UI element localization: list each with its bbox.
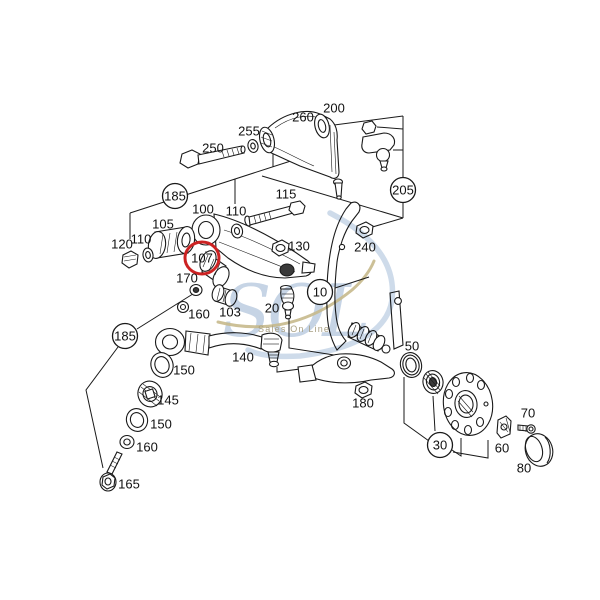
washer-160l-drawing [120,436,134,449]
part-number-text: 170 [176,271,198,286]
part-number-text: 107 [191,251,213,266]
washer-255-drawing [247,139,259,154]
part-number-text: 80 [517,461,531,476]
part-label-180: 180 [352,396,374,411]
part-label-120: 120 [111,237,133,252]
clip-60-drawing [497,416,511,438]
part-label-160: 160 [188,307,210,322]
part-number-text: 180 [352,396,374,411]
part-number-text: 60 [495,441,509,456]
part-number-text: 130 [288,239,310,254]
wheel-hub-30-drawing [439,369,496,438]
bearing-drawing [421,369,445,396]
watermark-logo: SOL [222,269,366,353]
part-label-30: 30 [428,433,453,458]
part-number-text: 200 [323,101,345,116]
part-label-205: 205 [391,178,416,203]
part-label-70: 70 [521,406,535,421]
part-number-text: 160 [188,307,210,322]
part-label-240: 240 [354,240,376,255]
part-number-text: 185 [164,189,186,204]
part-label-50: 50 [405,339,419,354]
part-label-110: 110 [131,232,152,247]
part-label-103: 103 [219,305,241,320]
nut-120-drawing [122,251,138,268]
watermark-tagline: Sales On Line [258,324,330,334]
part-number-text: 150 [173,363,195,378]
part-label-105: 105 [152,217,174,232]
seal-50-drawing [398,350,424,379]
part-label-250: 250 [202,141,224,156]
parts-diagram: SOL Sales On Line 2502552602002051851001… [0,0,600,600]
part-number-text: 255 [238,124,260,139]
part-number-text: 105 [152,217,174,232]
part-number-text: 160 [136,440,158,455]
part-label-165: 165 [118,477,140,492]
diagram-canvas: SOL Sales On Line 2502552602002051851001… [0,0,600,600]
part-label-115: 115 [276,187,297,202]
part-number-text: 250 [202,141,224,156]
part-label-130: 130 [288,239,310,254]
part-label-150: 150 [173,363,195,378]
part-number-text: 110 [226,204,247,219]
part-number-text: 30 [433,438,447,453]
washer-160m-drawing [178,302,189,313]
part-number-text: 240 [354,240,376,255]
part-label-255: 255 [238,124,260,139]
part-label-200: 200 [323,101,345,116]
part-label-110: 110 [226,204,247,219]
ball-joint-bracket-drawing [362,121,395,171]
part-label-20: 20 [265,301,279,316]
part-number-text: 50 [405,339,419,354]
part-label-100: 100 [192,202,214,217]
part-label-145: 145 [157,393,179,408]
part-label-185: 185 [163,184,188,209]
part-number-text: 145 [157,393,179,408]
part-number-text: 20 [265,301,279,316]
part-number-text: 140 [232,350,254,365]
bolt-115-drawing [244,201,305,227]
part-label-160: 160 [136,440,158,455]
pinch-bolt-drawing [334,179,343,199]
part-number-text: 115 [276,187,297,202]
ring-150-lower-drawing [123,406,150,434]
part-label-170: 170 [176,271,198,286]
part-label-185: 185 [113,324,138,349]
part-number-text: 110 [131,232,152,247]
part-label-10: 10 [308,280,333,305]
part-number-text: 10 [313,285,327,300]
part-label-150: 150 [150,417,172,432]
part-label-60: 60 [495,441,509,456]
part-number-text: 150 [150,417,172,432]
part-number-text: 120 [111,237,133,252]
part-label-80: 80 [517,461,531,476]
screw-70-drawing [518,425,535,433]
part-number-text: 70 [521,406,535,421]
part-number-text: 260 [292,110,314,125]
part-label-140: 140 [232,350,254,365]
part-number-text: 165 [118,477,140,492]
part-number-text: 100 [192,202,214,217]
part-number-text: 205 [392,183,414,198]
washer-170-drawing [190,285,202,296]
part-number-text: 103 [219,305,241,320]
part-number-text: 185 [114,329,136,344]
part-label-260: 260 [292,110,314,125]
